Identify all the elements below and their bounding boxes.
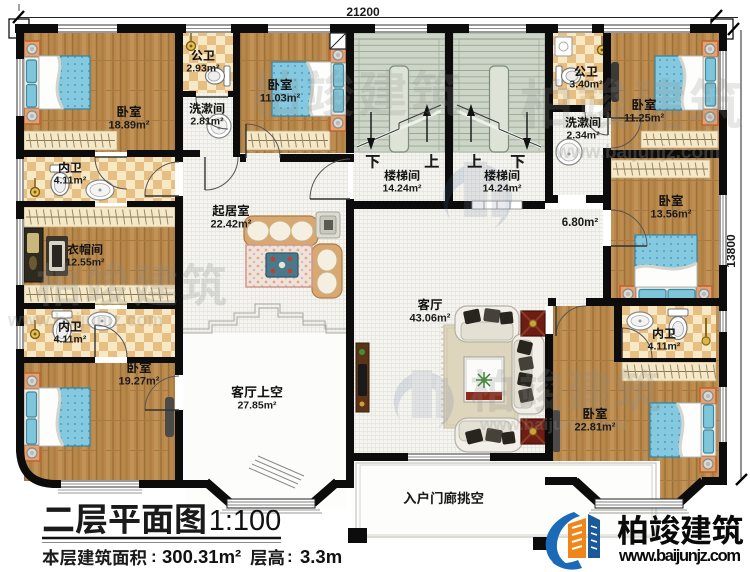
svg-text:27.85m²: 27.85m²	[237, 400, 277, 412]
svg-text:3.40m²: 3.40m²	[569, 79, 603, 91]
svg-text:43.06m²: 43.06m²	[410, 313, 451, 325]
svg-text:300.31m²: 300.31m²	[162, 546, 241, 567]
svg-text:4.11m²: 4.11m²	[54, 175, 87, 187]
svg-text:2.34m²: 2.34m²	[566, 130, 600, 142]
svg-text:6.80m²: 6.80m²	[562, 217, 599, 229]
svg-text:3.3m: 3.3m	[300, 546, 342, 567]
svg-text:14.24m²: 14.24m²	[482, 183, 522, 195]
svg-text:1:100: 1:100	[209, 505, 282, 537]
svg-text:2.81m²: 2.81m²	[190, 116, 224, 128]
svg-text:22.42m²: 22.42m²	[211, 219, 252, 231]
svg-text:12.55m²: 12.55m²	[65, 257, 105, 269]
svg-text:4.11m²: 4.11m²	[648, 341, 681, 353]
svg-text:13.56m²: 13.56m²	[651, 209, 692, 221]
svg-text:2.93m²: 2.93m²	[186, 63, 220, 75]
svg-text:www.baijunjz.com: www.baijunjz.com	[618, 547, 741, 565]
svg-text:22.81m²: 22.81m²	[575, 422, 616, 434]
svg-text:11.03m²: 11.03m²	[260, 93, 301, 105]
svg-text:11.25m²: 11.25m²	[624, 113, 665, 125]
svg-text:4.11m²: 4.11m²	[54, 334, 87, 346]
svg-text:14.24m²: 14.24m²	[382, 183, 422, 195]
svg-text:www.baijunjz.com: www.baijunjz.com	[7, 310, 163, 330]
svg-text::: :	[287, 547, 293, 566]
svg-text:18.89m²: 18.89m²	[109, 120, 150, 132]
svg-text:21200: 21200	[346, 5, 380, 19]
svg-text:19.27m²: 19.27m²	[119, 376, 160, 388]
svg-text:www.baijunjz.com: www.baijunjz.com	[555, 142, 720, 163]
svg-text::: :	[151, 547, 157, 566]
